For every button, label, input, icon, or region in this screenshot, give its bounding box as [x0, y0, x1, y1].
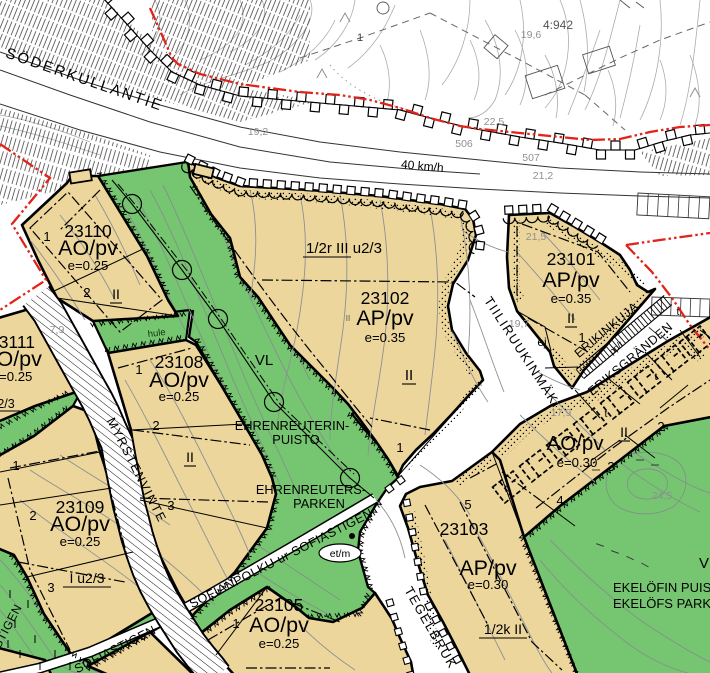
svg-text:19,6: 19,6	[521, 29, 542, 41]
svg-text:7,9: 7,9	[50, 324, 65, 336]
svg-text:4: 4	[556, 493, 563, 508]
svg-text:2: 2	[152, 418, 159, 433]
svg-text:3: 3	[167, 498, 174, 513]
svg-text:e=0.35: e=0.35	[365, 330, 406, 345]
svg-text:AO/pv: AO/pv	[249, 613, 309, 637]
svg-text:AO/pv: AO/pv	[58, 236, 118, 260]
svg-text:23105: 23105	[255, 595, 304, 615]
svg-text:e=0.35: e=0.35	[551, 291, 592, 306]
svg-text:3: 3	[607, 459, 614, 474]
svg-text:AO/pv: AO/pv	[50, 512, 110, 536]
svg-text:et/m: et/m	[330, 548, 351, 560]
svg-text:V: V	[699, 555, 709, 572]
svg-text:EHRENREUTERIN-: EHRENREUTERIN-	[235, 418, 349, 433]
svg-text:23101: 23101	[547, 249, 596, 269]
svg-text:506: 506	[455, 138, 473, 150]
svg-text:21,2: 21,2	[533, 170, 554, 182]
svg-text:EHRENREUTERS-: EHRENREUTERS-	[256, 482, 366, 497]
svg-text:1/2k II: 1/2k II	[484, 621, 522, 637]
svg-text:507: 507	[522, 152, 540, 164]
svg-text:19,2: 19,2	[248, 126, 269, 138]
svg-text:2: 2	[657, 419, 664, 434]
svg-text:e=0.30: e=0.30	[468, 577, 509, 592]
svg-text:1: 1	[12, 458, 19, 473]
svg-text:ej: ej	[537, 335, 546, 349]
svg-text:2: 2	[29, 508, 36, 523]
svg-text:II: II	[112, 286, 120, 302]
svg-text:1/2r III u2/3: 1/2r III u2/3	[306, 240, 382, 257]
svg-text:t: t	[677, 306, 680, 318]
svg-text:2: 2	[83, 285, 90, 300]
svg-text:AO/pv: AO/pv	[0, 347, 42, 371]
svg-text:1: 1	[43, 229, 50, 244]
svg-text:e=0.30: e=0.30	[557, 455, 598, 470]
svg-text:1: 1	[357, 32, 363, 44]
svg-text:II: II	[346, 314, 350, 323]
svg-text:23102: 23102	[361, 288, 410, 308]
svg-text:21,5: 21,5	[526, 231, 547, 243]
svg-text:23103: 23103	[440, 519, 489, 539]
svg-text:e=0.25: e=0.25	[259, 636, 300, 651]
svg-text:VL: VL	[255, 352, 273, 369]
svg-text:3: 3	[47, 580, 54, 595]
svg-text:EKELÖFS PARKEN: EKELÖFS PARKEN	[613, 596, 710, 611]
svg-text:1: 1	[135, 362, 142, 377]
svg-text:2/3: 2/3	[0, 397, 15, 411]
svg-text:1: 1	[396, 440, 403, 455]
svg-text:e=0.25: e=0.25	[60, 534, 101, 549]
svg-text:AO/pv: AO/pv	[547, 432, 605, 455]
svg-text:II: II	[405, 367, 413, 384]
svg-text:1: 1	[232, 616, 239, 631]
svg-text:II: II	[186, 449, 194, 465]
svg-text:EKELÖFIN PUISTO: EKELÖFIN PUISTO	[613, 580, 710, 595]
svg-text:I u2/3: I u2/3	[69, 570, 104, 586]
svg-text:e=0.25: e=0.25	[159, 389, 200, 404]
svg-text:II: II	[567, 310, 575, 326]
svg-text:22,5: 22,5	[484, 116, 505, 128]
svg-text:24,5: 24,5	[652, 490, 673, 502]
svg-text:AP/pv: AP/pv	[356, 306, 414, 330]
svg-text:II: II	[620, 424, 628, 440]
svg-text:e=0.25: e=0.25	[68, 258, 109, 273]
svg-text:e=0.25: e=0.25	[0, 369, 32, 384]
svg-text:5: 5	[464, 497, 471, 512]
svg-text:AP/pv: AP/pv	[542, 268, 600, 292]
svg-text:hule: hule	[147, 327, 166, 340]
svg-text:PARKEN: PARKEN	[293, 496, 345, 511]
svg-text:PUISTO: PUISTO	[272, 432, 319, 447]
svg-text:4:942: 4:942	[543, 18, 573, 32]
